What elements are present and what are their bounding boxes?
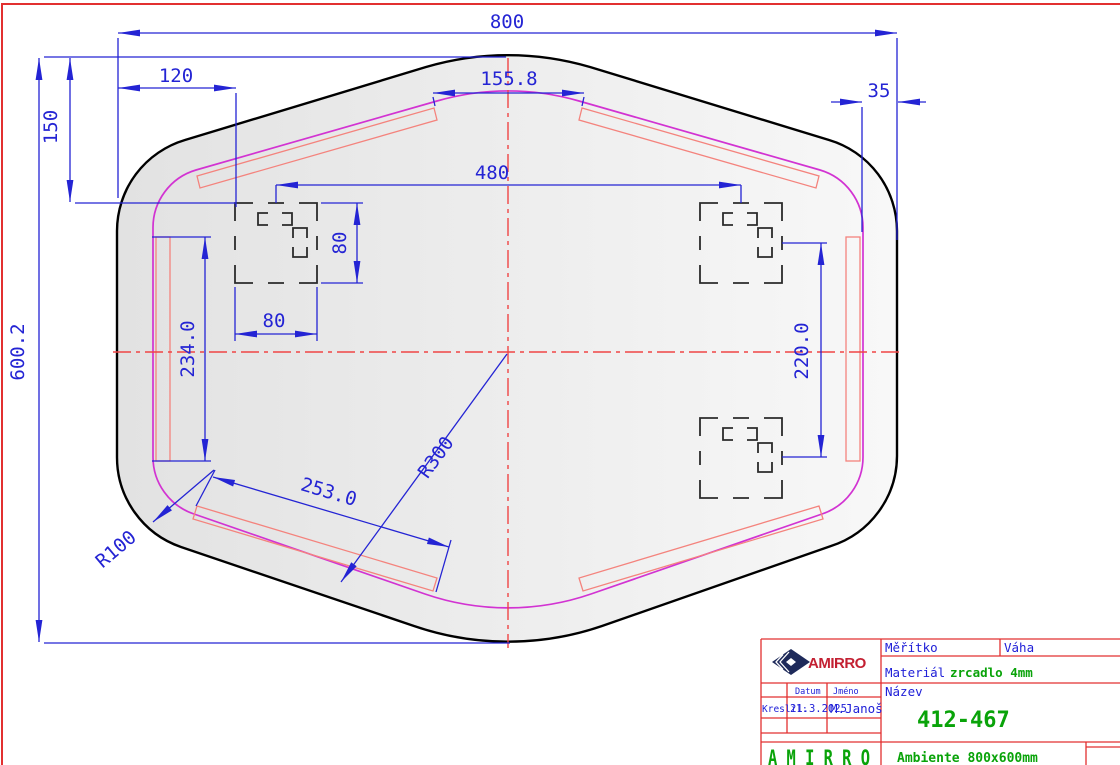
brand-wordmark: AMIRRO xyxy=(808,655,867,672)
dim-480-label: 480 xyxy=(475,162,509,184)
dim-220-label: 220.0 xyxy=(791,322,813,379)
dim-80v-label: 80 xyxy=(329,232,351,255)
dim-150-label: 150 xyxy=(40,110,62,144)
dim-234-label: 234.0 xyxy=(177,320,199,377)
dim-600-label: 600.2 xyxy=(7,323,29,380)
name-label: Název xyxy=(885,684,923,699)
author-value: M.Janoš xyxy=(830,701,883,716)
dim-35-label: 35 xyxy=(868,80,891,102)
material-label: Materiál xyxy=(885,665,945,680)
drawing-number: 412-467 xyxy=(917,708,1010,733)
brand-footer: A M I R R O xyxy=(768,746,870,765)
mirror-outline xyxy=(117,55,897,641)
dim-155-label: 155.8 xyxy=(480,68,537,90)
dim-800-label: 800 xyxy=(490,11,524,33)
material-value: zrcadlo 4mm xyxy=(950,665,1033,680)
amirro-logo: AMIRRO xyxy=(772,649,867,675)
cad-canvas: 800 600.2 150 120 155.8 35 480 xyxy=(0,0,1120,765)
title-block: Měřítko Váha Materiál zrcadlo 4mm Datum … xyxy=(761,639,1120,765)
author-label: Jméno xyxy=(833,686,859,697)
dim-r100-label: R100 xyxy=(92,526,141,572)
cad-drawing-page: 800 600.2 150 120 155.8 35 480 xyxy=(0,0,1120,765)
scale-label: Měřítko xyxy=(885,640,938,655)
dim-120-label: 120 xyxy=(159,65,193,87)
date-label: Datum xyxy=(795,687,821,697)
weight-label: Váha xyxy=(1004,640,1034,655)
dim-80h-label: 80 xyxy=(263,310,286,332)
product-name: Ambiente 800x600mm xyxy=(897,751,1038,765)
